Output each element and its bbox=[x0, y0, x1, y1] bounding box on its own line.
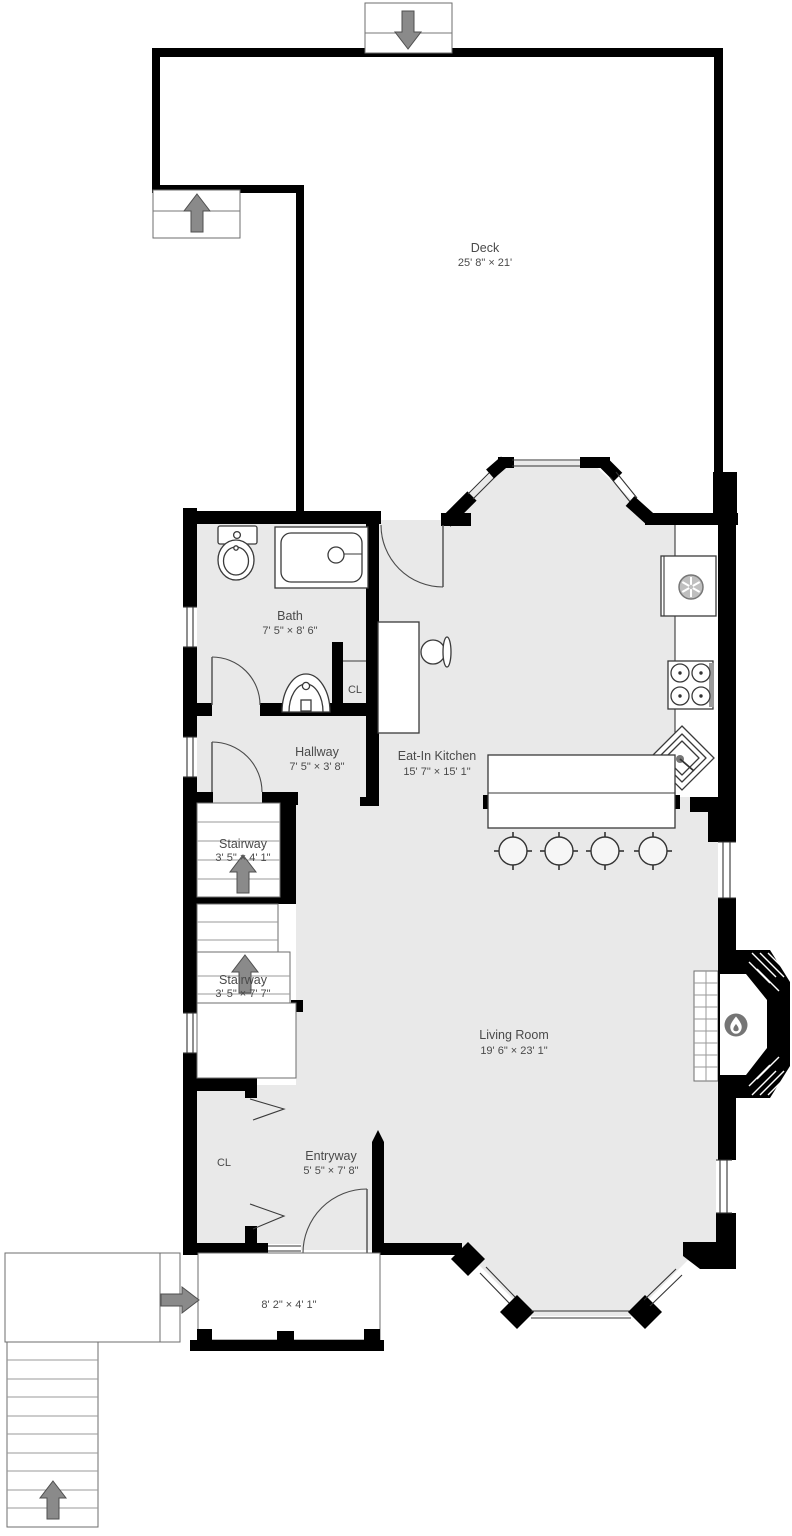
stair-landing bbox=[197, 1003, 296, 1078]
hearth bbox=[694, 971, 718, 1081]
fan-icon bbox=[679, 575, 703, 599]
floor-plan: Deck 25' 8" × 21' Bath 7' 5" × 8' 6" CL … bbox=[0, 0, 792, 1536]
window-hallway bbox=[183, 737, 197, 777]
room-label-entryway: Entryway bbox=[305, 1149, 357, 1163]
room-dims-entryway: 5' 5" × 7' 8" bbox=[303, 1165, 358, 1177]
room-label-stairway-upper: Stairway bbox=[219, 837, 268, 851]
closet-label-bath: CL bbox=[348, 684, 362, 696]
room-dims-stairway-lower: 3' 5" × 7' 7" bbox=[215, 988, 270, 1000]
room-dims-kitchen: 15' 7" × 15' 1" bbox=[403, 766, 470, 778]
room-dims-stairway-upper: 3' 5" × 4' 1" bbox=[215, 852, 270, 864]
room-dims-bath: 7' 5" × 8' 6" bbox=[262, 625, 317, 637]
window-bath bbox=[183, 607, 197, 647]
fireplace bbox=[694, 950, 790, 1098]
room-label-living: Living Room bbox=[479, 1028, 548, 1042]
refrigerator bbox=[661, 556, 716, 616]
room-label-kitchen: Eat-In Kitchen bbox=[398, 749, 477, 763]
room-label-bath: Bath bbox=[277, 609, 303, 623]
room-label-stairway-lower: Stairway bbox=[219, 973, 268, 987]
deck-top-entrance-marker bbox=[365, 3, 452, 53]
deck-side-landing-marker bbox=[153, 190, 240, 238]
room-dims-living: 19' 6" × 23' 1" bbox=[480, 1045, 547, 1057]
stove bbox=[668, 661, 714, 709]
bathtub bbox=[275, 527, 368, 588]
window-living-upper bbox=[718, 842, 736, 898]
window-living-lower bbox=[716, 1160, 732, 1213]
toilet bbox=[218, 526, 257, 580]
room-label-hallway: Hallway bbox=[295, 745, 340, 759]
closet-label-entry: CL bbox=[217, 1157, 231, 1169]
flame-icon bbox=[725, 1014, 748, 1037]
room-dims-deck: 25' 8" × 21' bbox=[458, 257, 512, 269]
island-counter bbox=[488, 755, 675, 828]
room-label-deck: Deck bbox=[471, 241, 500, 255]
room-dims-hallway: 7' 5" × 3' 8" bbox=[289, 761, 344, 773]
window-stair-landing bbox=[183, 1013, 197, 1053]
dining-table bbox=[378, 622, 419, 733]
porch-dims: 8' 2" × 4' 1" bbox=[261, 1299, 316, 1311]
